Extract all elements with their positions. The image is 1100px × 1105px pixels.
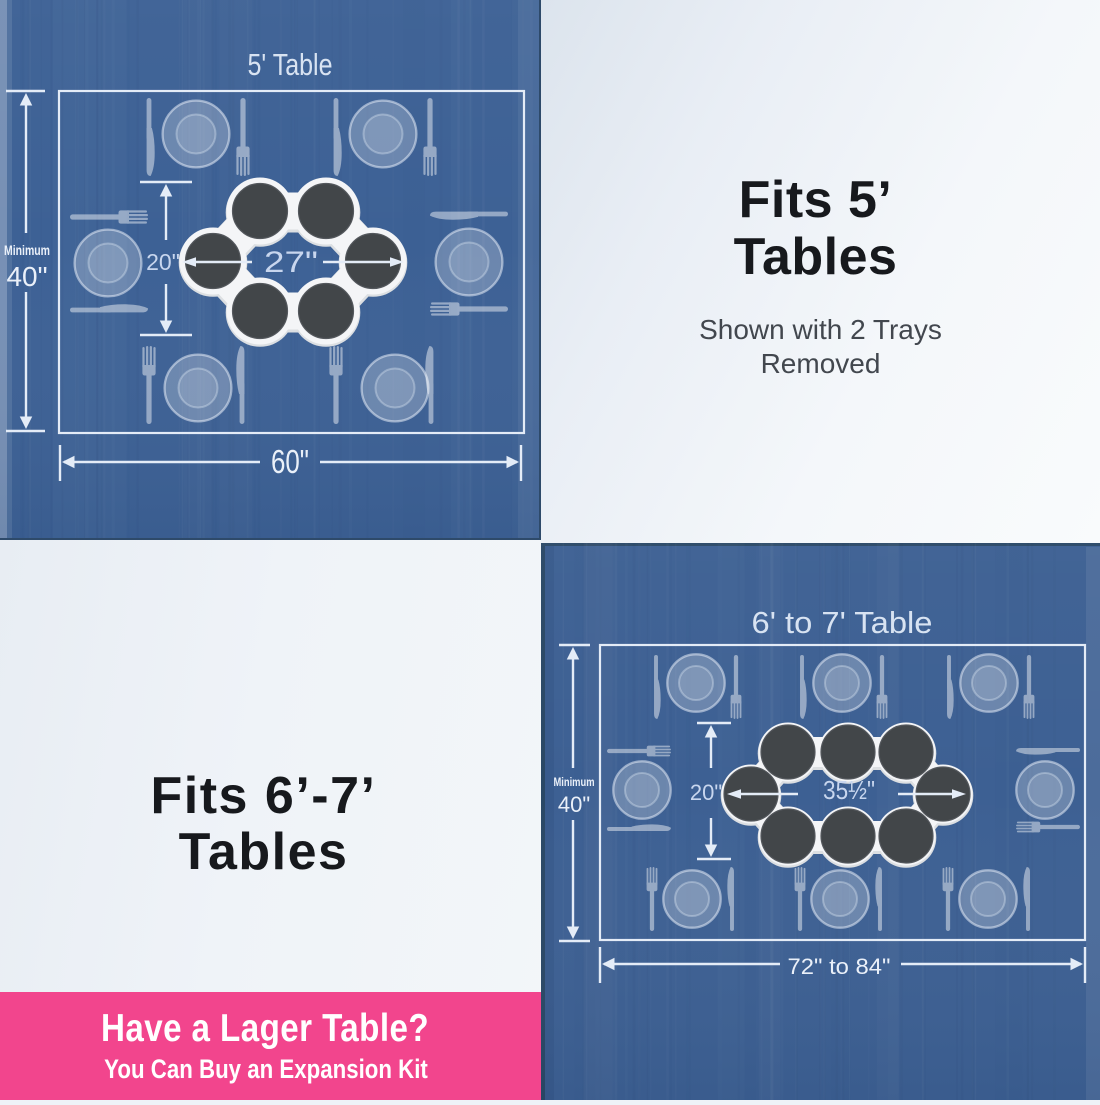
svg-text:40": 40" xyxy=(558,792,590,817)
svg-text:20": 20" xyxy=(690,780,722,805)
svg-text:6' to 7' Table: 6' to 7' Table xyxy=(752,605,933,640)
svg-text:35½": 35½" xyxy=(823,775,875,805)
svg-text:Minimum: Minimum xyxy=(554,775,595,789)
svg-text:40": 40" xyxy=(6,261,47,292)
svg-text:60": 60" xyxy=(271,443,309,480)
svg-text:27": 27" xyxy=(264,246,318,279)
svg-text:72" to 84": 72" to 84" xyxy=(788,954,891,979)
svg-text:Minimum: Minimum xyxy=(4,243,50,258)
svg-text:20": 20" xyxy=(146,249,180,275)
svg-text:5' Table: 5' Table xyxy=(248,47,333,82)
